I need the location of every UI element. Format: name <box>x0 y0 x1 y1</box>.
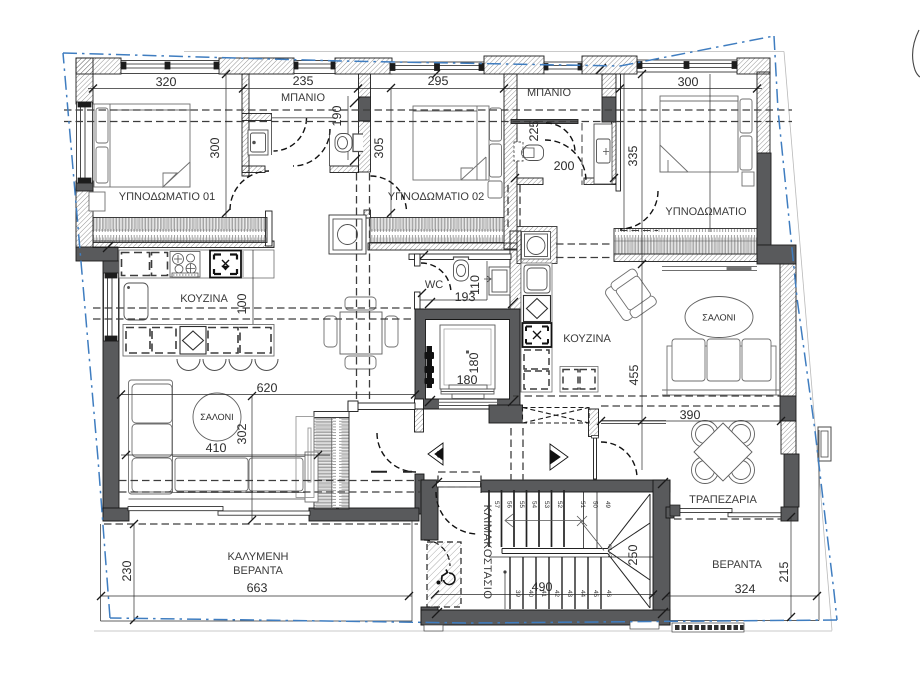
svg-text:WC: WC <box>425 279 443 291</box>
svg-text:53: 53 <box>543 501 550 509</box>
svg-text:ΜΠΑΝΙΟ: ΜΠΑΝΙΟ <box>281 92 325 104</box>
svg-text:ΥΠΝΟΔΩΜΑΤΙΟ 02: ΥΠΝΟΔΩΜΑΤΙΟ 02 <box>388 191 484 203</box>
svg-text:200: 200 <box>554 159 575 173</box>
svg-text:490: 490 <box>532 580 553 594</box>
svg-text:302: 302 <box>235 424 249 445</box>
svg-text:ΚΟΥΖΙΝΑ: ΚΟΥΖΙΝΑ <box>180 293 228 305</box>
svg-text:46: 46 <box>605 590 612 598</box>
svg-text:230: 230 <box>120 561 134 582</box>
svg-text:42: 42 <box>553 590 560 598</box>
svg-text:54: 54 <box>531 501 538 509</box>
svg-text:180: 180 <box>467 353 481 374</box>
svg-text:49: 49 <box>604 501 611 509</box>
svg-text:180: 180 <box>457 373 478 387</box>
svg-text:ΥΠΝΟΔΩΜΑΤΙΟ: ΥΠΝΟΔΩΜΑΤΙΟ <box>665 206 747 218</box>
svg-text:455: 455 <box>627 365 641 386</box>
svg-text:110: 110 <box>468 275 482 295</box>
svg-text:663: 663 <box>247 581 268 595</box>
svg-text:410: 410 <box>206 441 227 455</box>
svg-text:190: 190 <box>330 106 344 127</box>
svg-text:44: 44 <box>579 590 586 598</box>
svg-text:390: 390 <box>680 408 701 422</box>
svg-text:225: 225 <box>527 121 541 142</box>
svg-text:320: 320 <box>156 75 177 89</box>
svg-text:48 47: 48 47 <box>606 544 612 558</box>
svg-text:335: 335 <box>626 146 640 167</box>
svg-text:235: 235 <box>293 74 314 88</box>
svg-text:620: 620 <box>257 381 278 395</box>
svg-text:ΣΑΛΟΝΙ: ΣΑΛΟΝΙ <box>200 412 233 422</box>
svg-text:ΒΕΡΑΝΤΑ: ΒΕΡΑΝΤΑ <box>233 565 283 577</box>
svg-text:324: 324 <box>735 582 756 596</box>
svg-text:201: 201 <box>437 450 442 457</box>
svg-text:ΥΠΝΟΔΩΜΑΤΙΟ 01: ΥΠΝΟΔΩΜΑΤΙΟ 01 <box>119 191 215 203</box>
svg-text:50: 50 <box>592 501 599 509</box>
svg-text:ΜΠΑΝΙΟ: ΜΠΑΝΙΟ <box>527 87 571 99</box>
svg-text:295: 295 <box>428 74 449 88</box>
svg-text:39: 39 <box>514 590 521 598</box>
svg-text:215: 215 <box>777 562 791 583</box>
svg-text:43: 43 <box>566 590 573 598</box>
svg-text:51: 51 <box>579 501 586 509</box>
svg-text:45: 45 <box>592 590 599 598</box>
svg-text:300: 300 <box>208 138 222 159</box>
svg-text:57: 57 <box>493 501 500 509</box>
svg-text:300: 300 <box>678 75 699 89</box>
svg-text:ΒΕΡΑΝΤΑ: ΒΕΡΑΝΤΑ <box>712 559 762 571</box>
svg-text:52: 52 <box>556 501 563 509</box>
svg-text:305: 305 <box>372 138 386 159</box>
svg-text:ΚΟΥΖΙΝΑ: ΚΟΥΖΙΝΑ <box>563 333 611 345</box>
svg-text:56: 56 <box>506 501 513 509</box>
svg-text:ΚΛΙΜΑΚΟΣΤΑΣΙΟ: ΚΛΙΜΑΚΟΣΤΑΣΙΟ <box>481 505 493 600</box>
svg-text:202: 202 <box>550 454 555 461</box>
svg-text:ΤΡΑΠΕΖΑΡΙΑ: ΤΡΑΠΕΖΑΡΙΑ <box>689 494 757 506</box>
svg-text:250: 250 <box>626 545 640 566</box>
svg-text:55: 55 <box>518 501 525 509</box>
svg-text:100: 100 <box>235 294 249 315</box>
svg-text:ΣΑΛΟΝΙ: ΣΑΛΟΝΙ <box>702 313 735 323</box>
svg-text:ΚΑΛΥΜΕΝΗ: ΚΑΛΥΜΕΝΗ <box>228 551 289 563</box>
